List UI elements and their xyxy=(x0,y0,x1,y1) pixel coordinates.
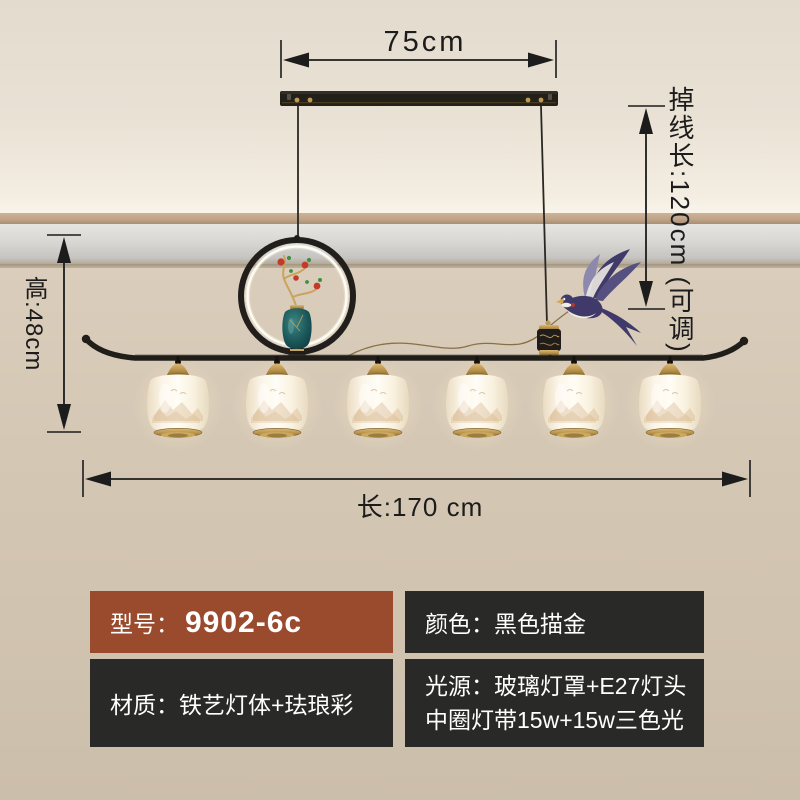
model-value: 9902-6c xyxy=(185,606,302,640)
glass-lantern-shade xyxy=(431,356,523,451)
ceiling-mount-bar xyxy=(280,91,558,106)
spec-cell-light-source: 光源：玻璃灯罩+E27灯头 中圈灯带15w+15w三色光 xyxy=(405,659,704,747)
height-dimension-label: 高:48cm xyxy=(16,276,51,406)
product-diagram: 75cm 掉线长:120cm (可调) 高:48cm 长:170 cm 型号： … xyxy=(0,0,800,800)
light-source-value-line1: 玻璃灯罩+E27灯头 xyxy=(494,673,686,699)
drum-bead-decoration xyxy=(537,320,561,359)
spec-table: 型号： 9902-6c 颜色： 黑色描金 材质： 铁艺灯体+珐琅彩 光源：玻璃灯… xyxy=(90,591,704,747)
light-source-label: 光源： xyxy=(425,673,494,699)
glass-lantern-shade xyxy=(528,356,620,451)
glass-lantern-shade xyxy=(132,356,224,451)
drop-length-dimension-label: 掉线长:120cm (可调) xyxy=(662,86,699,376)
color-value: 黑色描金 xyxy=(494,605,586,639)
glass-lantern-shades xyxy=(132,356,716,451)
glass-lantern-shade xyxy=(332,356,424,451)
spec-cell-material: 材质： 铁艺灯体+珐琅彩 xyxy=(90,659,393,747)
material-value: 铁艺灯体+珐琅彩 xyxy=(179,686,353,720)
top-width-dimension-label: 75cm xyxy=(340,26,510,59)
model-label: 型号： xyxy=(110,605,179,639)
suspension-cables xyxy=(298,106,547,324)
material-label: 材质： xyxy=(110,686,179,720)
total-length-dimension-label: 长:170 cm xyxy=(300,487,540,524)
light-source-value-line2: 中圈灯带15w+15w三色光 xyxy=(425,703,696,738)
spec-cell-model: 型号： 9902-6c xyxy=(90,591,393,653)
spec-cell-color: 颜色： 黑色描金 xyxy=(405,591,704,653)
swallow-bird-decoration xyxy=(556,249,641,346)
color-label: 颜色： xyxy=(425,605,494,639)
horizontal-lamp-bar xyxy=(82,335,748,358)
glass-lantern-shade xyxy=(231,356,323,451)
